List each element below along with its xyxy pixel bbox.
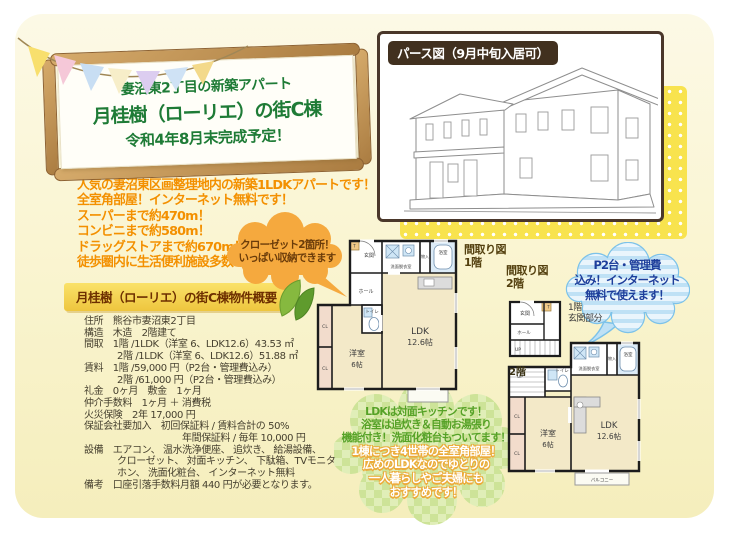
room-label-ldk-1f: LDK: [411, 327, 430, 337]
room-label-western-size-1f: 6帖: [351, 360, 362, 369]
room-label-ldk-size-1f: 12.6帖: [407, 337, 433, 347]
room-label-wc-2f: トイレ: [555, 369, 569, 374]
spec-line: 間取 1階 /1LDK（洋室 6、LDK12.6）43.53 ㎡: [84, 339, 336, 351]
room-label-hall-entr: ホール: [517, 330, 531, 336]
parking-bubble: P2台・管理費込み！インターネット無料で使えます！: [564, 242, 690, 354]
spec-line: 賃料 1階 /59,000 円（P2台・管理費込み）: [84, 363, 336, 375]
spec-line: クローゼット、 対面キッチン、 下駄箱、TVモニタ: [117, 456, 336, 468]
entrance-note-line1: 1階: [568, 303, 602, 314]
room-label-wash-1f: 洗面脱衣室: [391, 263, 412, 270]
room-label-cl-2f: CL: [514, 414, 520, 420]
room-label-cl-1f: CL: [322, 366, 328, 372]
parking-bubble-text: P2台・管理費込み！インターネット無料で使えます！: [564, 242, 690, 303]
room-label-ldk-2f: LDK: [601, 421, 618, 431]
building-line-drawing-icon: [386, 60, 658, 218]
perspective-label: パース図（9月中旬入居可）: [388, 41, 558, 65]
room-label-mono-1f: 物入: [421, 253, 429, 259]
plan-title-2f-floor: 2階: [506, 277, 548, 290]
room-label-western-2f: 洋室: [540, 428, 556, 438]
flyer-page: パース図（9月中旬入居可） 妻沼東2丁目の新築アパート 月桂樹（ローリエ）の街C…: [0, 0, 729, 534]
room-label-ldk-size-2f: 12.6帖: [597, 431, 622, 441]
plan-title-2f: 間取り図 2階: [506, 264, 548, 290]
room-label-hall-1f: ホール: [358, 289, 373, 295]
spec-line: 備考 口座引落手数料月額 440 円が必要となります。: [84, 480, 336, 492]
feature-green-lines: LDKは対面キッチンです！浴室は追炊き＆自動お湯張り機能付き！洗面化粧台もついて…: [334, 405, 518, 445]
feature-bubble: LDKは対面キッチンです！浴室は追炊き＆自動お湯張り機能付き！洗面化粧台もついて…: [334, 386, 518, 528]
spec-line: 構造 木造 2階建て: [84, 328, 336, 340]
room-label-western-size-2f: 6帖: [542, 440, 553, 449]
room-label-wc-1f: トイレ: [365, 310, 379, 315]
room-label-shoebox-1f: T: [352, 244, 356, 249]
plan-title-1f-floor: 1階: [464, 256, 506, 269]
spec-line: 年間保証料 / 毎年 10,000 円: [182, 433, 336, 445]
room-label-bath-1f: 浴室: [439, 249, 448, 256]
bunting-flags-icon: [16, 24, 254, 112]
feature-green-line: 機能付き！洗面化粧台もついてます！: [334, 431, 518, 444]
parking-bubble-line: 無料で使えます！: [564, 288, 690, 303]
room-label-western-1f: 洋室: [349, 348, 365, 358]
entrance-note-line2: 玄関部分: [568, 314, 602, 325]
feature-white-line: 1棟につき4世帯の全室角部屋！: [334, 445, 518, 459]
room-label-cl-2f: CL: [514, 451, 520, 457]
room-label-mono-2f: 物入: [608, 355, 616, 361]
spec-line: 礼金 0ヶ月 敷金 1ヶ月: [84, 386, 336, 398]
room-label-bath-2f: 浴室: [624, 351, 633, 358]
spec-line: 保証会社要加入 初回保証料 / 賃料合計の 50%: [84, 421, 336, 433]
room-label-genkan-entr: 玄関: [520, 310, 530, 317]
entrance-note: 1階 玄関部分: [568, 303, 602, 325]
perspective-drawing-box: パース図（9月中旬入居可）: [377, 31, 664, 222]
plan-title-2f-text: 間取り図: [506, 264, 548, 277]
feature-green-line: 浴室は追炊き＆自動お湯張り: [334, 418, 518, 431]
spec-line: 設備 エアコン、 温水洗浄便座、 追炊き、 給湯設備、: [84, 445, 336, 457]
property-spec-list: 住所 熊谷市妻沼東2丁目構造 木造 2階建て間取 1階 /1LDK（洋室 6、L…: [84, 316, 336, 492]
spec-line: 2階 /61,000 円（P2台・管理費込み）: [117, 375, 336, 387]
highlight-line: 人気の妻沼東区画整理地内の新築1LDKアパートです！: [77, 178, 375, 193]
plan-title-1f: 間取り図 1階: [464, 243, 506, 269]
floor2-small-label: 2階: [509, 363, 526, 378]
room-label-genkan-1f: 玄関: [364, 252, 374, 259]
spec-line: ホン、 洗面化粧台、 インターネット無料: [117, 468, 336, 480]
floor-plan-1f: 玄関 ホール 洗面脱衣室 物入 浴室 トイレ LDK 12.6帖 洋室 6帖 C…: [316, 237, 458, 407]
feature-white-lines: 1棟につき4世帯の全室角部屋！広めのLDKなのでゆとりの一人暮らしやご夫婦にもお…: [334, 445, 518, 500]
highlight-line: 全室角部屋！インターネット無料です！: [77, 193, 375, 208]
feature-white-line: 広めのLDKなのでゆとりの: [334, 458, 518, 472]
room-label-balcony-2f: バルコニー: [591, 478, 614, 484]
parking-bubble-line: 込み！インターネット: [564, 273, 690, 288]
parking-bubble-line: P2台・管理費: [564, 258, 690, 273]
plan-title-1f-text: 間取り図: [464, 243, 506, 256]
spec-line: 仲介手数料 1ヶ月 ＋ 消費税: [84, 398, 336, 410]
leaf-icon: [274, 276, 316, 322]
room-label-shoebox-entr: T: [546, 305, 550, 310]
feature-white-line: 一人暮らしやご夫婦にも: [334, 472, 518, 486]
room-label-cl-1f: CL: [322, 324, 328, 330]
spec-line: 火災保険 2年 17,000 円: [84, 410, 336, 422]
feature-white-line: おすすめです！: [334, 486, 518, 500]
room-label-wash-2f: 洗面脱衣室: [579, 365, 600, 372]
spec-line: 2階 /1LDK（洋室 6、LDK12.6）51.88 ㎡: [117, 351, 336, 363]
